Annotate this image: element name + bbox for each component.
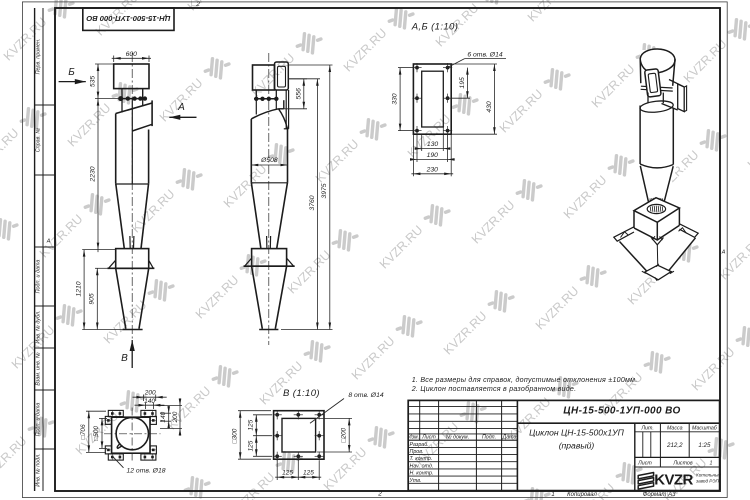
svg-text:Справ. №: Справ. № <box>36 128 42 153</box>
svg-text:№ докум.: № докум. <box>446 434 469 440</box>
svg-text:А: А <box>721 250 726 256</box>
svg-text:А,Б (1:10): А,Б (1:10) <box>411 22 459 33</box>
svg-text:140: 140 <box>144 398 155 405</box>
svg-text:Масштаб: Масштаб <box>692 426 718 432</box>
svg-text:Нач. отд.: Нач. отд. <box>410 463 434 469</box>
svg-text:Масса: Масса <box>667 426 683 432</box>
svg-text:Н. контр.: Н. контр. <box>410 471 434 477</box>
svg-text:□500: □500 <box>93 426 100 441</box>
svg-text:125: 125 <box>303 470 314 477</box>
svg-text:2230: 2230 <box>89 166 96 182</box>
svg-text:Копировал: Копировал <box>567 492 597 498</box>
svg-text:2: 2 <box>195 1 200 8</box>
svg-text:□200: □200 <box>340 427 347 442</box>
svg-text:3975: 3975 <box>321 183 328 198</box>
svg-text:А: А <box>46 239 51 245</box>
svg-text:535: 535 <box>89 76 96 88</box>
svg-text:212,2: 212,2 <box>666 442 683 449</box>
svg-text:230: 230 <box>426 166 439 173</box>
svg-text:Б: Б <box>68 67 75 78</box>
svg-text:200: 200 <box>144 390 156 397</box>
svg-text:завод РЭП: завод РЭП <box>695 479 720 484</box>
svg-text:Инв. № подл.: Инв. № подл. <box>36 453 42 486</box>
svg-text:Утв.: Утв. <box>410 478 422 484</box>
svg-text:12 отв. Ø18: 12 отв. Ø18 <box>126 468 165 475</box>
svg-text:Перв. примен.: Перв. примен. <box>36 39 42 75</box>
svg-text:Листов: Листов <box>672 461 693 467</box>
svg-text:(правый): (правый) <box>559 440 595 450</box>
svg-text:□300: □300 <box>231 428 238 443</box>
svg-text:Подп. и дата: Подп. и дата <box>36 260 42 294</box>
svg-text:190: 190 <box>427 152 439 159</box>
svg-text:Циклон ЦН-15-500х1УП: Циклон ЦН-15-500х1УП <box>529 428 624 438</box>
svg-text:125: 125 <box>282 470 293 477</box>
svg-text:430: 430 <box>486 101 493 113</box>
svg-text:Инв. № дубл.: Инв. № дубл. <box>36 310 42 343</box>
svg-text:Взам. инв. №: Взам. инв. № <box>36 352 42 386</box>
svg-text:Пров.: Пров. <box>410 449 424 455</box>
svg-text:125: 125 <box>248 419 255 430</box>
svg-text:8 отв. Ø14: 8 отв. Ø14 <box>348 392 384 399</box>
svg-text:1:25: 1:25 <box>698 442 711 449</box>
svg-text:Лист: Лист <box>637 461 652 467</box>
svg-text:3760: 3760 <box>309 195 316 210</box>
svg-text:А: А <box>177 102 185 113</box>
svg-text:В: В <box>121 353 128 364</box>
svg-text:6 отв. Ø14: 6 отв. Ø14 <box>467 51 503 58</box>
svg-text:140: 140 <box>160 411 167 422</box>
svg-text:1210: 1210 <box>76 281 83 296</box>
svg-text:130: 130 <box>427 141 439 148</box>
svg-text:□706: □706 <box>80 424 87 439</box>
svg-text:Подп.: Подп. <box>482 434 496 440</box>
svg-text:В (1:10): В (1:10) <box>283 388 320 399</box>
svg-text:Изм.: Изм. <box>408 434 419 440</box>
svg-text:200: 200 <box>172 411 179 423</box>
svg-text:Лист: Лист <box>421 434 436 440</box>
svg-text:1: 1 <box>710 461 713 467</box>
svg-text:Формат А3: Формат А3 <box>643 492 676 498</box>
svg-text:Ø508: Ø508 <box>260 157 278 164</box>
svg-text:Лит.: Лит. <box>640 426 653 432</box>
svg-text:Дата: Дата <box>502 434 517 440</box>
svg-text:1. Все размеры для справок: 1. Все размеры для справок, допустимые о… <box>412 376 638 384</box>
svg-text:Т. контр.: Т. контр. <box>410 456 433 462</box>
svg-text:330: 330 <box>392 93 399 105</box>
svg-text:125: 125 <box>248 440 255 451</box>
svg-text:556: 556 <box>295 88 302 100</box>
svg-text:Подп. и дата: Подп. и дата <box>36 403 42 437</box>
svg-text:195: 195 <box>459 77 466 89</box>
svg-text:905: 905 <box>89 293 96 305</box>
svg-text:ЦН-15-500-1УП-000 ВО: ЦН-15-500-1УП-000 ВО <box>563 406 680 417</box>
svg-text:Котельный: Котельный <box>696 472 721 478</box>
svg-text:Разраб.: Разраб. <box>410 442 429 448</box>
svg-text:2. Циклон поставляется в р: 2. Циклон поставляется в разобранном вид… <box>411 385 577 393</box>
svg-text:KVZR: KVZR <box>654 472 693 489</box>
svg-text:ЦН-15-500-1УП-000 ВО: ЦН-15-500-1УП-000 ВО <box>86 14 170 23</box>
svg-text:1: 1 <box>551 492 554 498</box>
svg-text:600: 600 <box>126 51 138 58</box>
svg-text:2: 2 <box>377 491 382 498</box>
